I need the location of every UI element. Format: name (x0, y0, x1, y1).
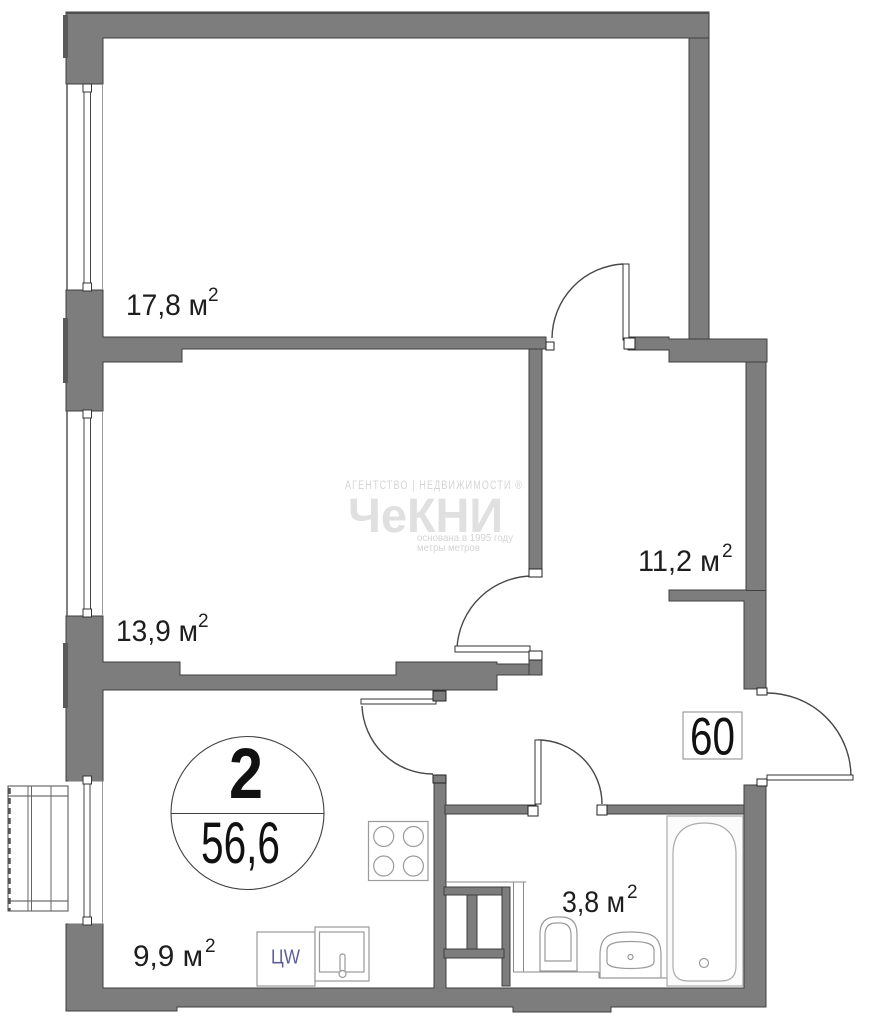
svg-text:9,9 м: 9,9 м (133, 940, 203, 973)
svg-text:метры метров: метры метров (417, 543, 480, 554)
svg-text:2: 2 (208, 285, 219, 306)
svg-text:2: 2 (205, 936, 216, 957)
svg-text:60: 60 (690, 708, 735, 767)
svg-text:11,2 м: 11,2 м (638, 545, 720, 578)
svg-text:17,8 м: 17,8 м (126, 289, 208, 322)
svg-text:2: 2 (722, 541, 733, 562)
svg-text:13,9 м: 13,9 м (116, 615, 198, 648)
svg-text:ЦW: ЦW (271, 947, 300, 969)
svg-text:56,6: 56,6 (201, 811, 280, 876)
svg-text:2: 2 (198, 611, 209, 632)
svg-text:2: 2 (627, 882, 638, 903)
svg-text:2: 2 (229, 735, 263, 814)
svg-text:3,8 м: 3,8 м (562, 886, 625, 919)
